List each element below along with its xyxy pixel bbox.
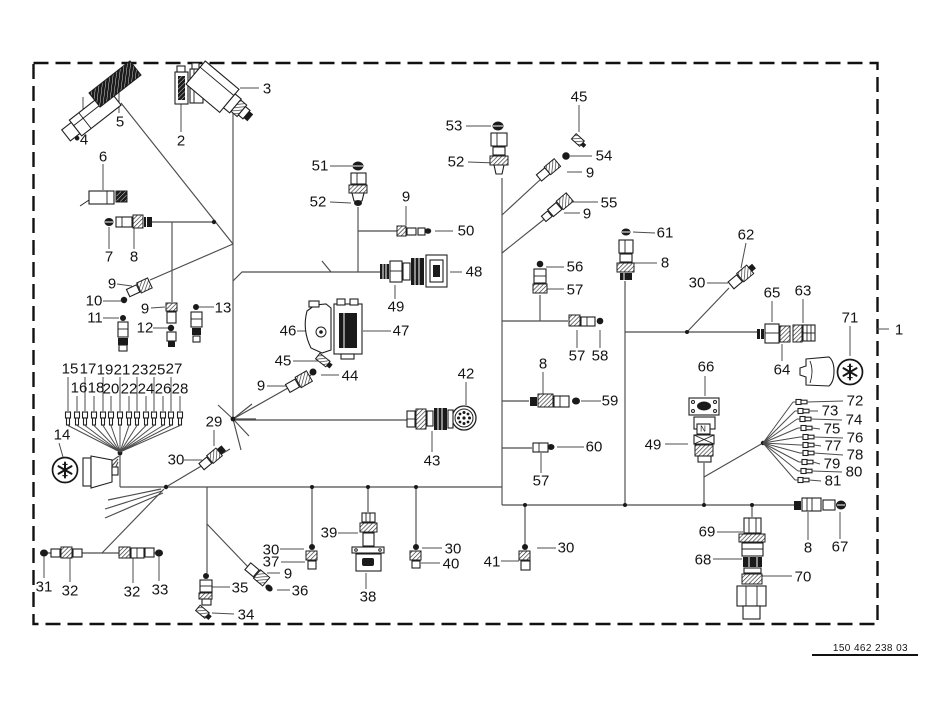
component-52-left	[349, 173, 367, 206]
part-callout-45: 45	[571, 89, 588, 106]
part-callout-46: 46	[280, 323, 297, 340]
part-callout-28: 28	[172, 381, 189, 398]
component-63	[793, 325, 815, 342]
part-callout-4: 4	[80, 132, 88, 149]
component-46	[305, 301, 331, 353]
component-30-41	[519, 544, 530, 570]
component-9-10	[121, 278, 152, 303]
part-callout-31: 31	[36, 579, 53, 596]
part-callout-34: 34	[238, 607, 255, 624]
part-callout-68: 68	[695, 552, 712, 569]
part-callout-32: 32	[124, 584, 141, 601]
part-callout-17: 17	[80, 361, 97, 378]
parts-diagram-page: 150 462 238 03 4523678910119121351529505…	[0, 0, 950, 725]
part-callout-27: 27	[166, 361, 183, 378]
part-callout-57: 57	[567, 282, 584, 299]
part-callout-72: 72	[847, 393, 864, 410]
component-51	[353, 162, 364, 171]
part-callout-58: 58	[592, 348, 609, 365]
component-52-right	[490, 133, 508, 174]
part-callout-49: 49	[388, 299, 405, 316]
part-callout-9: 9	[108, 276, 116, 293]
component-7	[105, 218, 114, 226]
part-callout-30: 30	[689, 275, 706, 292]
part-callout-8: 8	[539, 356, 547, 373]
part-callout-49: 49	[645, 437, 662, 454]
component-29-30	[198, 444, 227, 470]
part-callout-64: 64	[774, 362, 791, 379]
part-callout-19: 19	[97, 362, 114, 379]
component-39-38	[352, 513, 384, 571]
part-callout-78: 78	[847, 447, 864, 464]
part-callout-44: 44	[342, 368, 359, 385]
part-callout-11: 11	[87, 310, 103, 327]
part-callout-80: 80	[846, 464, 863, 481]
part-callout-45: 45	[275, 353, 292, 370]
part-callout-43: 43	[424, 453, 441, 470]
component-14	[53, 456, 119, 488]
component-9-12	[166, 303, 177, 347]
component-31-32	[40, 547, 82, 558]
part-callout-7: 7	[105, 249, 113, 266]
component-47	[334, 299, 362, 359]
part-callout-8: 8	[661, 255, 669, 272]
part-callout-3: 3	[263, 81, 271, 98]
component-59	[530, 394, 580, 407]
part-callout-59: 59	[602, 393, 619, 410]
part-callout-70: 70	[795, 569, 812, 586]
wiring-harness-diagram: 150 462 238 03 4523678910119121351529505…	[0, 0, 950, 725]
component-45-top	[571, 134, 587, 149]
component-42	[452, 406, 476, 430]
component-34	[196, 605, 213, 621]
component-65-64	[757, 324, 790, 343]
part-callout-69: 69	[699, 524, 716, 541]
part-callout-9: 9	[284, 566, 292, 583]
part-callout-8: 8	[804, 540, 812, 557]
part-callout-37: 37	[263, 554, 280, 571]
part-callout-60: 60	[586, 439, 603, 456]
part-callout-9: 9	[141, 301, 149, 318]
part-callout-14: 14	[54, 427, 71, 444]
part-callout-40: 40	[443, 556, 460, 573]
component-44-9	[285, 369, 317, 394]
part-callout-10: 10	[86, 293, 103, 310]
part-callout-23: 23	[132, 362, 149, 379]
part-callout-66: 66	[698, 359, 715, 376]
part-callout-62: 62	[738, 227, 755, 244]
part-callout-48: 48	[466, 264, 483, 281]
part-callout-13: 13	[215, 300, 232, 317]
part-callout-54: 54	[596, 148, 613, 165]
part-callout-29: 29	[206, 414, 223, 431]
part-callout-30: 30	[558, 540, 575, 557]
part-callout-25: 25	[149, 362, 166, 379]
component-11	[118, 315, 128, 351]
part-callout-73: 73	[822, 403, 839, 420]
part-callout-75: 75	[824, 421, 841, 438]
part-callout-9: 9	[583, 206, 591, 223]
component-54	[536, 152, 570, 182]
component-57-58	[569, 315, 603, 326]
component-32-33	[119, 547, 163, 558]
component-60	[533, 443, 555, 452]
component-43	[407, 408, 453, 430]
part-callout-39: 39	[321, 525, 338, 542]
part-callout-5: 5	[116, 114, 124, 131]
component-35	[199, 573, 212, 605]
component-6	[80, 191, 127, 206]
snowflake-symbol-icon	[838, 360, 863, 385]
part-callout-52: 52	[448, 154, 465, 171]
part-callout-79: 79	[824, 456, 841, 473]
component-48-49	[380, 255, 447, 287]
part-callout-6: 6	[99, 149, 107, 166]
part-callout-35: 35	[232, 580, 249, 597]
harness-wires	[44, 103, 796, 573]
component-56-57	[533, 261, 547, 293]
component-50	[397, 226, 431, 236]
part-callout-2: 2	[177, 133, 185, 150]
part-callout-71: 71	[842, 310, 859, 327]
part-callout-51: 51	[312, 158, 329, 175]
part-callout-33: 33	[152, 582, 169, 599]
component-45-mid	[316, 353, 334, 369]
component-30-37	[306, 544, 317, 569]
part-callout-30: 30	[168, 452, 185, 469]
part-callout-38: 38	[360, 589, 377, 606]
part-callout-76: 76	[847, 430, 864, 447]
part-callout-61: 61	[657, 225, 674, 242]
part-callout-52: 52	[310, 194, 327, 211]
part-callout-57: 57	[569, 348, 586, 365]
part-callout-26: 26	[155, 381, 172, 398]
component-69-68-70	[737, 518, 766, 619]
component-53	[493, 122, 504, 131]
part-callout-16: 16	[71, 380, 88, 397]
part-callout-1: 1	[895, 322, 903, 339]
part-callout-9: 9	[257, 378, 265, 395]
part-callout-67: 67	[832, 539, 849, 556]
part-callout-81: 81	[825, 473, 842, 490]
part-callout-42: 42	[458, 366, 475, 383]
part-callout-50: 50	[458, 223, 475, 240]
part-callout-55: 55	[601, 195, 618, 212]
part-callout-21: 21	[114, 362, 131, 379]
component-55	[540, 193, 573, 223]
part-callout-12: 12	[137, 320, 154, 337]
part-callout-63: 63	[795, 283, 812, 300]
part-callout-47: 47	[393, 323, 410, 340]
snowflake-symbol-icon	[53, 458, 78, 483]
component-8-67	[794, 498, 846, 511]
part-callout-74: 74	[846, 412, 863, 429]
component-61-8	[617, 229, 634, 281]
part-callout-22: 22	[121, 381, 138, 398]
component-71	[800, 357, 863, 386]
component-8	[116, 215, 152, 228]
part-callout-20: 20	[103, 381, 120, 398]
component-30-62	[728, 262, 758, 290]
part-callout-8: 8	[130, 249, 138, 266]
part-callout-53: 53	[446, 118, 463, 135]
part-callout-36: 36	[292, 583, 309, 600]
part-callout-32: 32	[62, 583, 79, 600]
drawing-number-text: 150 462 238 03	[833, 643, 908, 654]
part-callout-9: 9	[402, 189, 410, 206]
part-callout-41: 41	[484, 554, 501, 571]
component-30-40	[410, 544, 421, 568]
part-callout-N: N	[700, 425, 706, 434]
part-callout-15: 15	[62, 361, 79, 378]
part-callout-65: 65	[764, 285, 781, 302]
part-callout-57: 57	[533, 473, 550, 490]
part-callout-9: 9	[586, 165, 594, 182]
part-callout-24: 24	[138, 381, 155, 398]
part-callout-56: 56	[567, 259, 584, 276]
part-callout-77: 77	[825, 438, 842, 455]
component-13	[191, 304, 202, 342]
